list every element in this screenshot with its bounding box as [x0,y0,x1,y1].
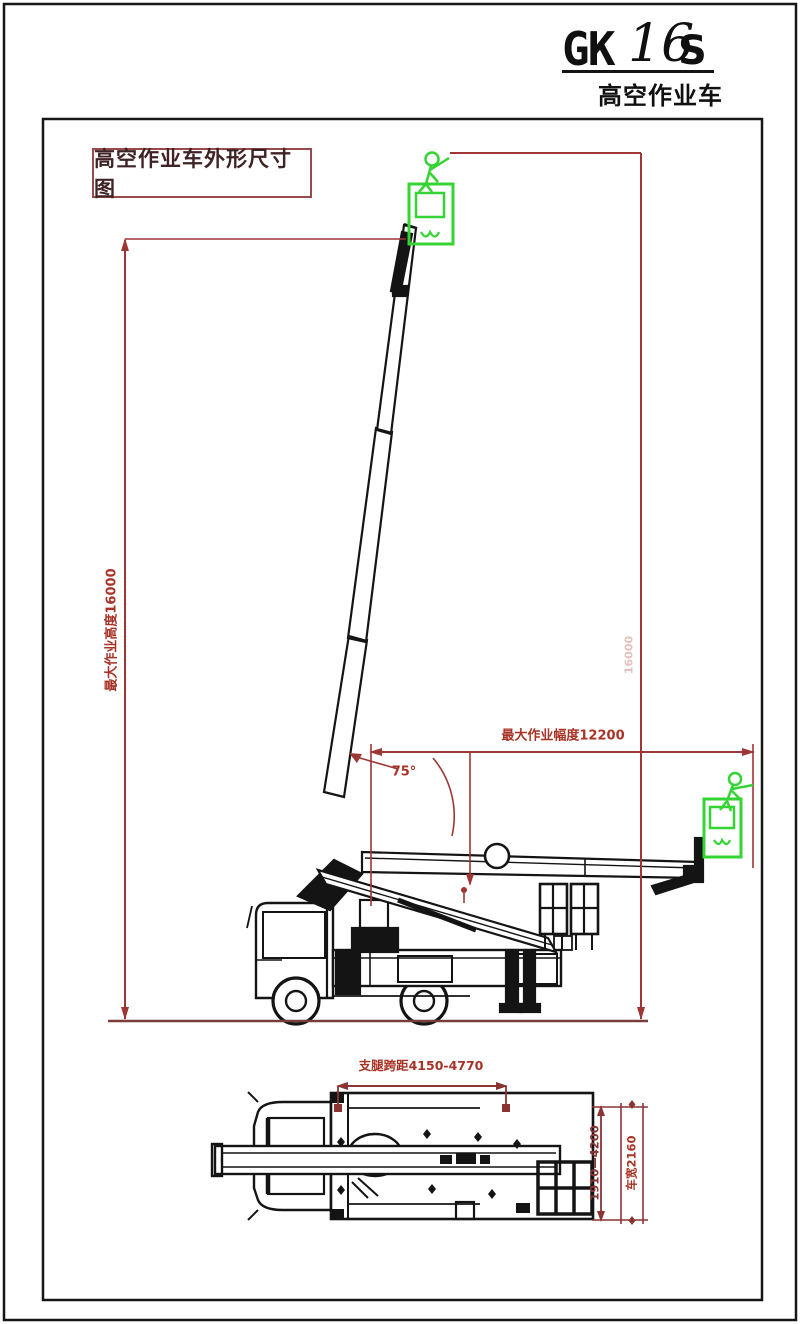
truck-side-view [247,838,703,1024]
max-working-height-label: 最大作业高度16000 [106,568,119,691]
outrigger-width-label: 1910—4200 [589,1125,601,1201]
raised-boom [324,224,417,797]
max-working-radius-label: 最大作业幅度12200 [501,730,624,743]
drawing-title-box: 高空作业车外形尺寸图 [92,148,312,198]
truck-top-view [212,1092,593,1220]
drawing-title: 高空作业车外形尺寸图 [94,143,310,203]
logo-subtitle: 高空作业车 [598,76,723,111]
boom-angle-label: 75° [392,766,417,779]
worker-figure-side [720,773,753,811]
height-faint-label: 16000 [624,636,635,674]
outrigger-span-label: 支腿跨距4150-4770 [359,1060,484,1073]
side-basket-and-figure [704,773,753,857]
worker-figure-top [419,153,449,193]
logo-brand: GK [562,22,613,76]
drawing-sheet: GK 16 S 高空作业车 高空作业车外形尺寸图 最大作业高度16000 160… [0,0,800,1324]
logo-underline [562,70,714,73]
vehicle-width-label: 车宽2160 [626,1135,638,1190]
logo-series-letter: S [678,28,707,74]
